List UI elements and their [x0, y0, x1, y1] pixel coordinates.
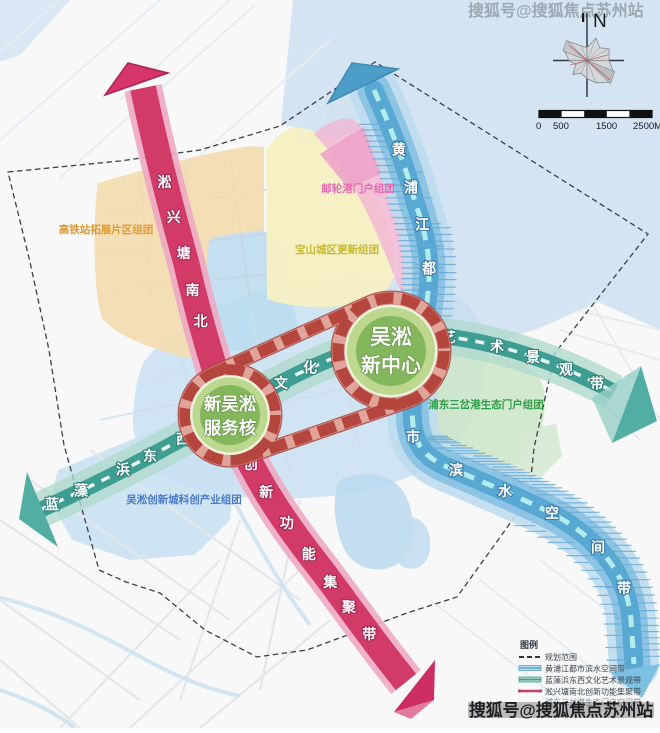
svg-text:文: 文 [274, 375, 289, 391]
svg-text:集: 集 [322, 574, 338, 590]
svg-text:新中心: 新中心 [361, 353, 421, 377]
svg-text:滨: 滨 [449, 462, 463, 478]
svg-text:观: 观 [559, 361, 573, 377]
svg-text:带: 带 [362, 626, 376, 642]
svg-text:北: 北 [194, 313, 208, 329]
svg-text:江: 江 [415, 217, 429, 233]
svg-text:黄: 黄 [392, 142, 406, 158]
svg-text:新: 新 [259, 484, 273, 500]
svg-text:规划范围: 规划范围 [545, 652, 577, 662]
svg-text:南: 南 [186, 282, 200, 298]
svg-text:水: 水 [498, 483, 513, 499]
svg-text:新吴淞: 新吴淞 [204, 394, 257, 414]
svg-text:搜狐号@搜狐焦点苏州站: 搜狐号@搜狐焦点苏州站 [468, 1, 644, 20]
svg-text:蓝: 蓝 [45, 496, 59, 512]
svg-text:化: 化 [303, 360, 317, 376]
svg-text:高铁站拓展片区组团: 高铁站拓展片区组团 [59, 223, 154, 236]
svg-text:空: 空 [545, 505, 559, 521]
svg-text:邮轮港门户组团: 邮轮港门户组团 [321, 182, 395, 195]
svg-text:吴淞: 吴淞 [370, 326, 412, 349]
svg-text:浦: 浦 [404, 180, 418, 196]
svg-text:市: 市 [406, 429, 420, 445]
svg-text:浜: 浜 [116, 462, 130, 478]
svg-text:东: 东 [143, 448, 157, 464]
svg-text:淞兴塘南北创新功能集聚带: 淞兴塘南北创新功能集聚带 [545, 687, 641, 697]
svg-text:景: 景 [526, 349, 540, 365]
svg-text:藻: 藻 [74, 482, 89, 498]
svg-text:能: 能 [302, 546, 316, 562]
svg-text:500: 500 [553, 121, 569, 132]
svg-text:淞: 淞 [157, 174, 171, 190]
svg-text:服务核: 服务核 [204, 418, 257, 438]
svg-text:功: 功 [280, 515, 294, 531]
svg-text:带: 带 [590, 375, 604, 391]
svg-text:间: 间 [591, 540, 605, 556]
svg-text:图例: 图例 [520, 639, 538, 650]
svg-text:吴淞创新城科创产业组团: 吴淞创新城科创产业组团 [126, 493, 242, 506]
svg-text:宝山城区更新组团: 宝山城区更新组团 [295, 243, 379, 256]
svg-text:黄浦江都市滨水空间带: 黄浦江都市滨水空间带 [545, 664, 625, 674]
svg-text:2500M: 2500M [633, 121, 660, 132]
svg-text:浦东三岔港生态门户组团: 浦东三岔港生态门户组团 [428, 398, 544, 411]
svg-text:蓝藻浜东西文化艺术景观带: 蓝藻浜东西文化艺术景观带 [545, 675, 641, 685]
svg-text:0: 0 [536, 121, 541, 132]
svg-text:聚: 聚 [341, 599, 357, 615]
svg-text:搜狐号@搜狐焦点苏州站: 搜狐号@搜狐焦点苏州站 [469, 700, 653, 720]
svg-text:术: 术 [490, 338, 504, 354]
svg-text:都: 都 [421, 261, 436, 277]
svg-text:带: 带 [617, 580, 631, 596]
svg-text:塘: 塘 [177, 245, 191, 261]
svg-text:1500: 1500 [596, 121, 617, 132]
svg-text:兴: 兴 [167, 209, 181, 225]
